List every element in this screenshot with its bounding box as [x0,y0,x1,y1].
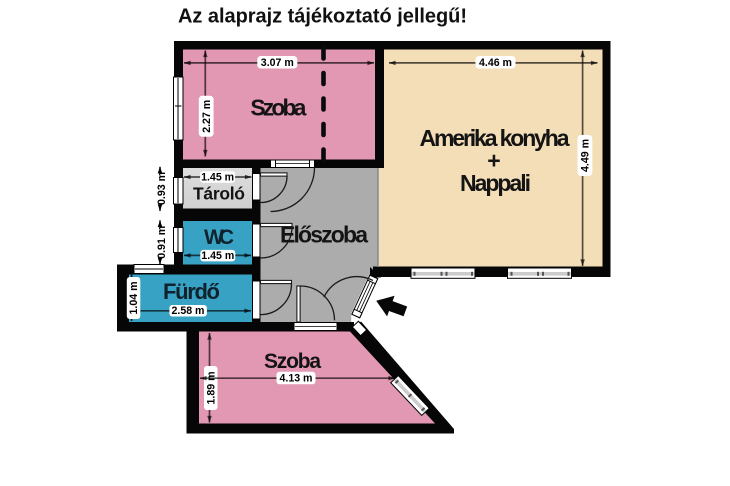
svg-text:3.07 m: 3.07 m [261,57,294,69]
svg-text:Tároló: Tároló [193,183,245,203]
svg-text:Nappali: Nappali [460,170,531,196]
svg-text:Szoba: Szoba [250,95,306,121]
svg-text:4.46 m: 4.46 m [479,57,512,69]
svg-text:4.49 m: 4.49 m [580,139,592,172]
svg-text:Az alaprajz tájékoztató jelleg: Az alaprajz tájékoztató jellegű! [178,6,467,28]
svg-text:0.93 m: 0.93 m [156,172,168,205]
svg-text:WC: WC [204,226,234,249]
svg-text:2.27 m: 2.27 m [201,100,213,133]
svg-text:1.45 m: 1.45 m [201,172,234,184]
svg-text:4.13 m: 4.13 m [280,373,313,385]
svg-text:1.45 m: 1.45 m [201,250,234,262]
svg-text:1.04 m: 1.04 m [128,282,140,315]
svg-text:1.89 m: 1.89 m [205,372,217,405]
svg-text:0.91 m: 0.91 m [156,226,168,259]
svg-text:Előszoba: Előszoba [280,222,368,248]
svg-text:Fürdő: Fürdő [163,279,220,304]
svg-text:Szoba: Szoba [264,350,321,373]
svg-text:2.58 m: 2.58 m [172,305,205,317]
